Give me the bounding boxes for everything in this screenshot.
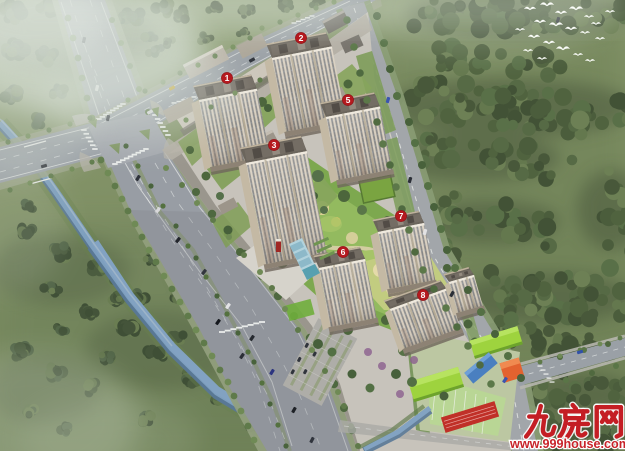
svg-text:7: 7 bbox=[399, 211, 404, 221]
svg-text:3: 3 bbox=[272, 140, 277, 150]
svg-text:www.999house.com: www.999house.com bbox=[509, 437, 625, 451]
svg-text:1: 1 bbox=[225, 73, 230, 83]
svg-text:8: 8 bbox=[421, 290, 426, 300]
svg-text:2: 2 bbox=[299, 33, 304, 43]
svg-text:6: 6 bbox=[341, 247, 346, 257]
svg-text:5: 5 bbox=[346, 95, 351, 105]
